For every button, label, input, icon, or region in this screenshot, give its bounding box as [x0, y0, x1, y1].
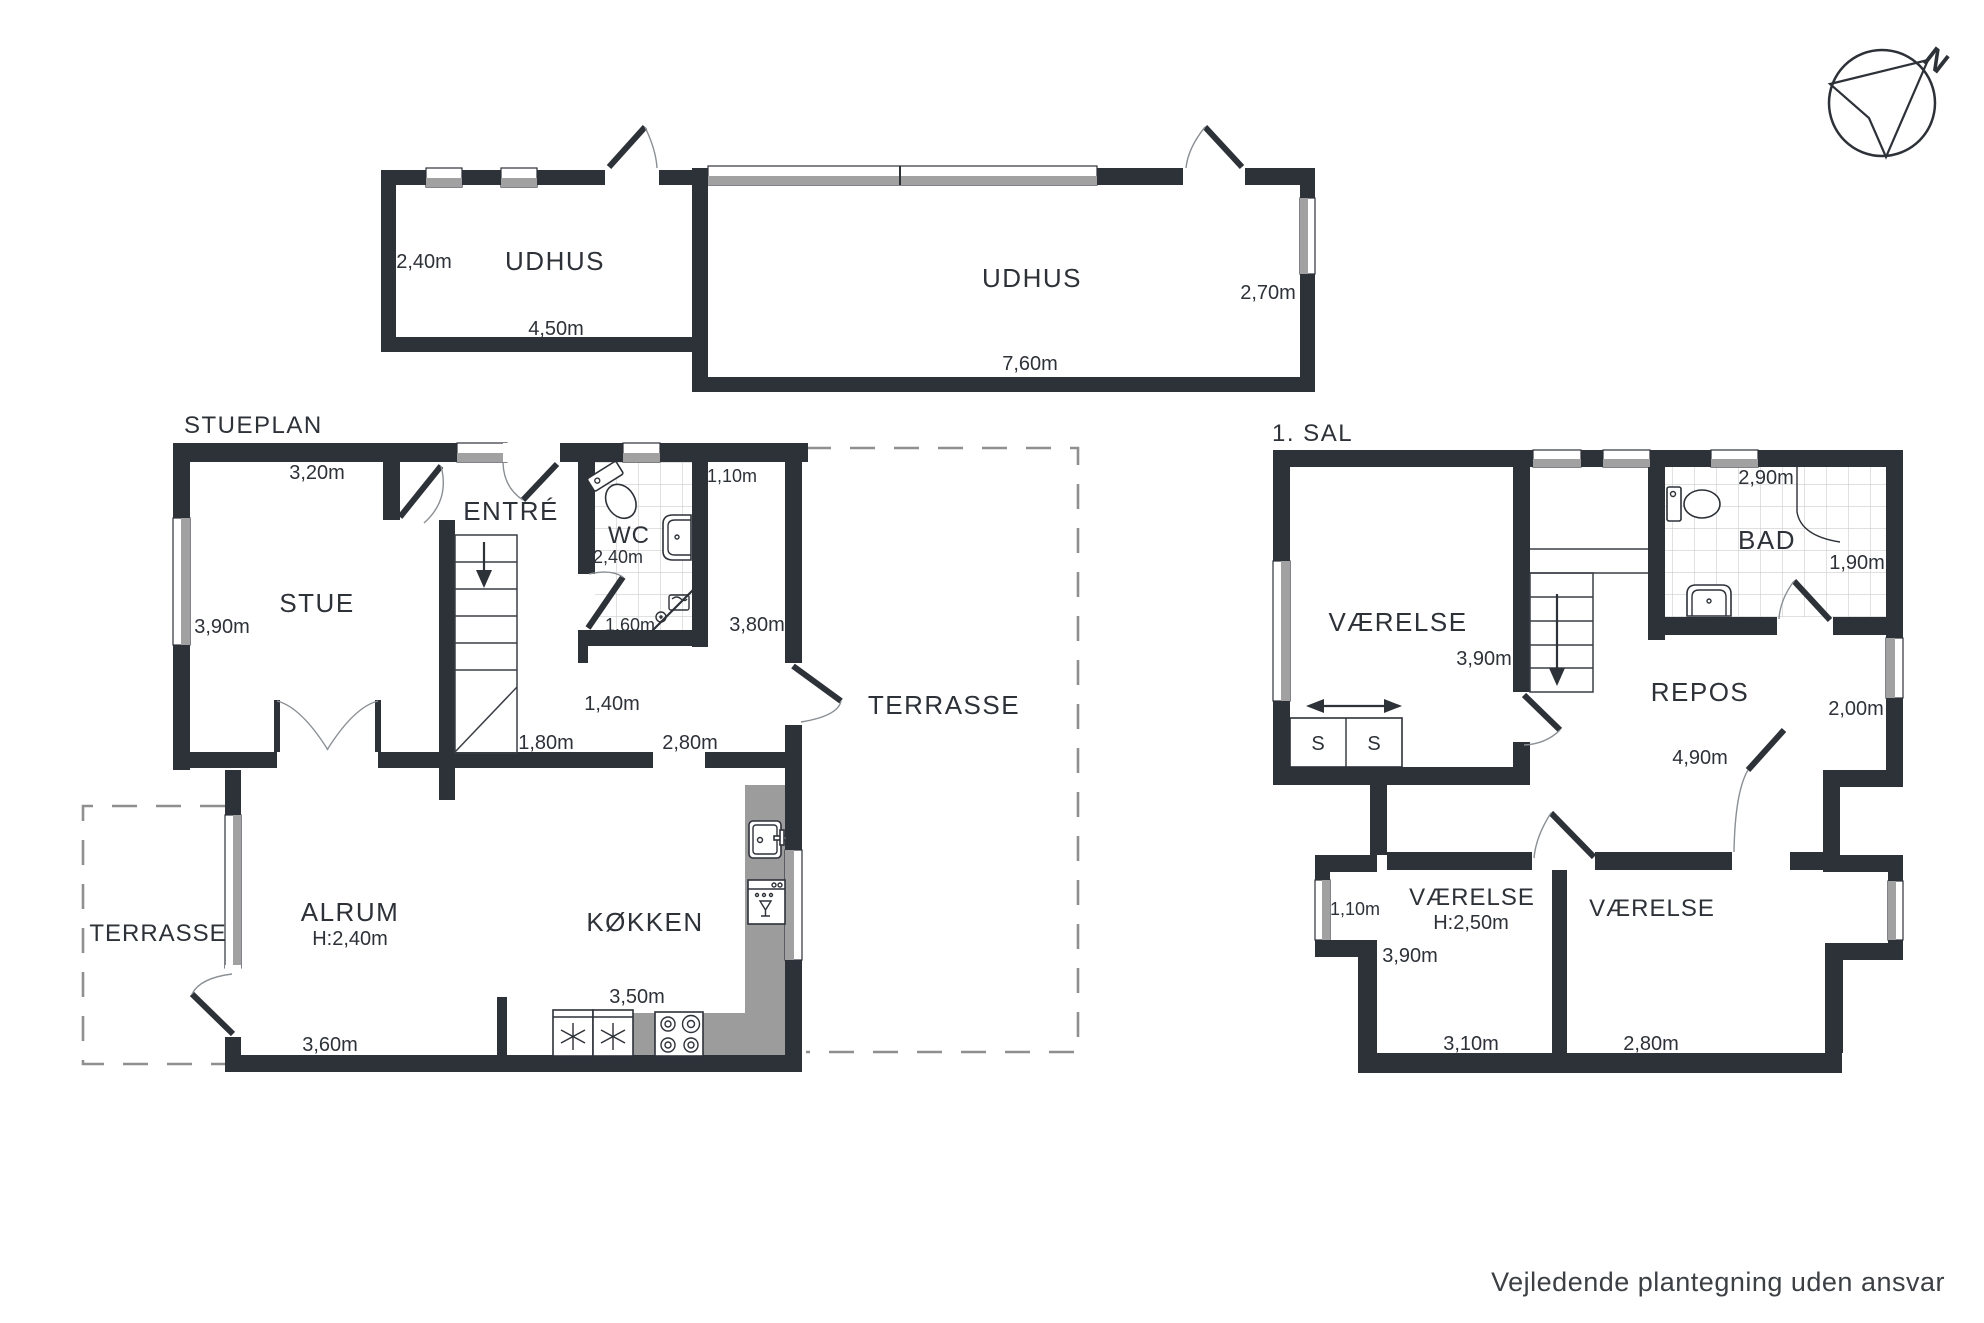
dim-udhus-left-width: 4,50m	[528, 318, 584, 340]
room-label-terrasse-left: TERRASSE	[89, 920, 226, 947]
floorplan-page: UDHUS 2,40m 4,50m UDHUS 7,60m 2,70m STUE…	[0, 0, 1984, 1323]
dim-alrum-width: 3,60m	[302, 1034, 358, 1056]
room-label-vaerelse-sw: VÆRELSE	[1409, 884, 1535, 911]
ground-floor-walls	[173, 443, 808, 1072]
terrasse-right-outline	[806, 448, 1078, 1052]
dim-udhus-right-width: 7,60m	[1002, 353, 1058, 375]
ground-floor-plan: STUEPLAN	[83, 412, 1078, 1072]
dim-hall-depth: 3,80m	[729, 614, 785, 636]
outbuilding-plan: UDHUS 2,40m 4,50m UDHUS 7,60m 2,70m	[381, 127, 1315, 392]
dim-repos-2: 2,00m	[1828, 698, 1884, 720]
first-floor-plan: 1. SAL	[1272, 420, 1903, 1073]
fridge	[593, 1010, 633, 1056]
dim-wc-width: 2,40m	[593, 547, 643, 567]
room-label-vaerelse-se: VÆRELSE	[1589, 895, 1715, 922]
room-label-vaerelse-nw: VÆRELSE	[1328, 607, 1467, 637]
room-label-kokken: KØKKEN	[586, 907, 703, 937]
wc-sink	[663, 515, 691, 560]
dim-bad-width: 2,90m	[1738, 467, 1794, 489]
ground-floor-title: STUEPLAN	[184, 412, 323, 439]
dim-wc-width2: 1,60m	[605, 615, 655, 635]
closet-label-s2: S	[1367, 733, 1380, 755]
bad-sink	[1687, 585, 1731, 616]
room-label-bad: BAD	[1738, 525, 1796, 555]
dishwasher	[748, 880, 785, 924]
kitchen-sink	[749, 821, 786, 858]
compass: N	[1829, 41, 1955, 157]
dim-vaerelse-sw-depth: 3,90m	[1382, 945, 1438, 967]
room-label-alrum: ALRUM	[301, 897, 400, 927]
room-label-udhus-left: UDHUS	[505, 246, 605, 276]
dim-hall-2: 1,80m	[518, 732, 574, 754]
closet: S S	[1290, 699, 1402, 767]
bad-toilet	[1667, 487, 1720, 521]
room-label-udhus-right: UDHUS	[982, 263, 1082, 293]
dim-hall-1: 1,40m	[584, 693, 640, 715]
dim-hall-3: 2,80m	[662, 732, 718, 754]
dim-vaerelse-sw-ceiling: H:2,50m	[1433, 912, 1509, 934]
dim-bad-depth: 1,90m	[1829, 552, 1885, 574]
room-label-terrasse-right: TERRASSE	[868, 690, 1020, 720]
room-label-stue: STUE	[279, 588, 354, 618]
compass-needle	[1830, 60, 1928, 157]
room-label-wc: WC	[608, 522, 650, 549]
first-floor-title: 1. SAL	[1272, 420, 1353, 447]
dim-stue-depth: 3,90m	[194, 616, 250, 638]
ground-floor-stairs	[455, 535, 517, 753]
disclaimer-text: Vejledende plantegning uden ansvar	[1491, 1267, 1945, 1297]
dim-hall-width: 1,10m	[707, 466, 757, 486]
dim-repos-width: 4,90m	[1672, 747, 1728, 769]
dim-alrum-ceiling: H:2,40m	[312, 928, 388, 950]
room-label-repos: REPOS	[1651, 677, 1750, 707]
closet-label-s1: S	[1311, 733, 1324, 755]
dim-stue-width: 3,20m	[289, 462, 345, 484]
first-floor-stairs	[1530, 549, 1648, 692]
dim-vaerelse-sw-dormer: 1,10m	[1330, 899, 1380, 919]
floor-plan-canvas: UDHUS 2,40m 4,50m UDHUS 7,60m 2,70m STUE…	[0, 0, 1984, 1323]
stove	[655, 1012, 703, 1056]
outbuilding-walls	[381, 168, 1315, 392]
dim-udhus-right-depth: 2,70m	[1240, 282, 1296, 304]
room-label-entre: ENTRÉ	[463, 496, 559, 526]
dim-kokken-width: 3,50m	[609, 986, 665, 1008]
freezer	[553, 1010, 593, 1056]
dim-vaerelse-nw-depth: 3,90m	[1456, 648, 1512, 670]
dim-udhus-left-depth: 2,40m	[396, 251, 452, 273]
dim-vaerelse-sw-width: 3,10m	[1443, 1033, 1499, 1055]
outbuilding-labels: UDHUS 2,40m 4,50m UDHUS 7,60m 2,70m	[396, 246, 1296, 375]
dim-vaerelse-se-width: 2,80m	[1623, 1033, 1679, 1055]
